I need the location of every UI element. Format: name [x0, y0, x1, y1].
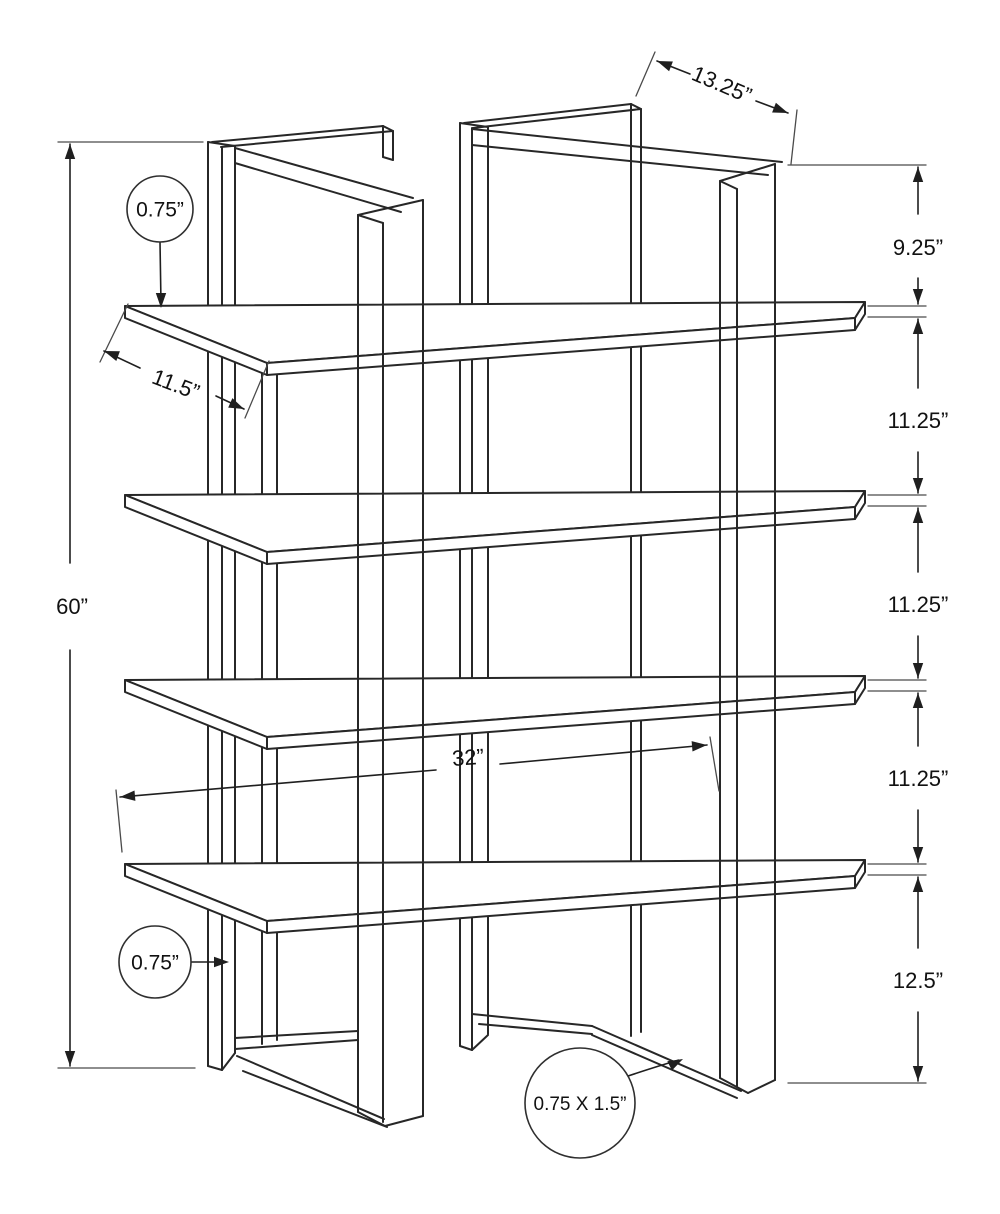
dim-label-width: 32”: [451, 744, 484, 771]
arrowhead-12: [65, 1051, 75, 1066]
left-front-post-botcap-b: [385, 1116, 423, 1126]
arrowhead-16: [228, 398, 244, 409]
callout-label-frame-thickness: 0.75”: [131, 952, 179, 975]
arrowhead-14: [772, 103, 788, 113]
dim-label-shelf-depth: 11.5”: [149, 364, 203, 405]
left-top-rail-top: [235, 148, 413, 198]
arrowhead-13: [657, 61, 673, 71]
dim-width-b: [500, 745, 707, 764]
dim-label-gap-4: 11.25”: [888, 766, 949, 791]
left-bottom-rail-far-a: [235, 1031, 358, 1038]
left-front-post-topcap-b: [358, 215, 383, 223]
ext-width-left: [116, 790, 122, 852]
dim-label-gap-3: 11.25”: [888, 592, 949, 617]
arrowhead-10: [913, 1066, 923, 1081]
ext-depth-right: [791, 110, 797, 164]
right-top-rail-bottom: [472, 145, 768, 175]
right-back-post-botcap-b: [472, 1035, 488, 1050]
arrowhead-3: [913, 319, 923, 334]
right-front-post-botcap-a: [720, 1078, 748, 1093]
dim-label-gap-top: 9.25”: [893, 235, 943, 260]
arrowhead-9: [913, 877, 923, 892]
right-top-band-endcap: [631, 104, 641, 109]
left-back-post-botcap-a: [208, 1066, 222, 1070]
right-top-rail-top: [472, 129, 782, 162]
arrowhead-2: [913, 289, 923, 304]
arrowhead-15: [104, 351, 120, 361]
arrowhead-17: [120, 791, 135, 801]
arrowhead-4: [913, 478, 923, 493]
right-bottom-rail-far-b: [479, 1024, 592, 1034]
ext-depth-left: [636, 52, 655, 96]
left-bottom-rail-far-b: [235, 1040, 358, 1049]
ext-width-right: [710, 737, 719, 791]
arrowhead-1: [913, 167, 923, 182]
page: 9.25”11.25”11.25”11.25”12.5”60”13.25”11.…: [0, 0, 1000, 1214]
arrowhead-11: [65, 144, 75, 159]
callout-label-tube-size: 0.75 X 1.5”: [534, 1094, 627, 1115]
arrowhead-6: [913, 663, 923, 678]
dim-label-height: 60”: [56, 594, 88, 619]
dim-label-gap-2: 11.25”: [888, 408, 949, 433]
right-front-post-topcap-b: [720, 181, 737, 189]
right-front-post-botcap-b: [748, 1080, 775, 1093]
arrowhead-18: [692, 741, 707, 751]
dim-label-gap-bottom: 12.5”: [893, 968, 943, 993]
dim-label-top-depth: 13.25”: [688, 61, 755, 108]
left-bottom-rail-near-b: [243, 1071, 387, 1127]
left-top-stub-bot: [383, 157, 393, 160]
callout-label-shelf-thickness: 0.75”: [136, 199, 184, 222]
dimension-lines-layer: [65, 61, 923, 1158]
left-bottom-rail-near-a: [237, 1056, 384, 1119]
arrowhead-8: [913, 847, 923, 862]
arrowhead-7: [913, 693, 923, 708]
arrowhead-5: [913, 508, 923, 523]
dimension-diagram: 9.25”11.25”11.25”11.25”12.5”60”13.25”11.…: [0, 0, 1000, 1214]
right-front-post-topcap-a: [720, 164, 775, 181]
left-back-post-botcap-b: [222, 1053, 235, 1070]
structure-near-layer: [235, 129, 782, 1127]
left-top-band-endcap: [383, 126, 393, 131]
right-back-post-botcap-a: [460, 1046, 472, 1050]
